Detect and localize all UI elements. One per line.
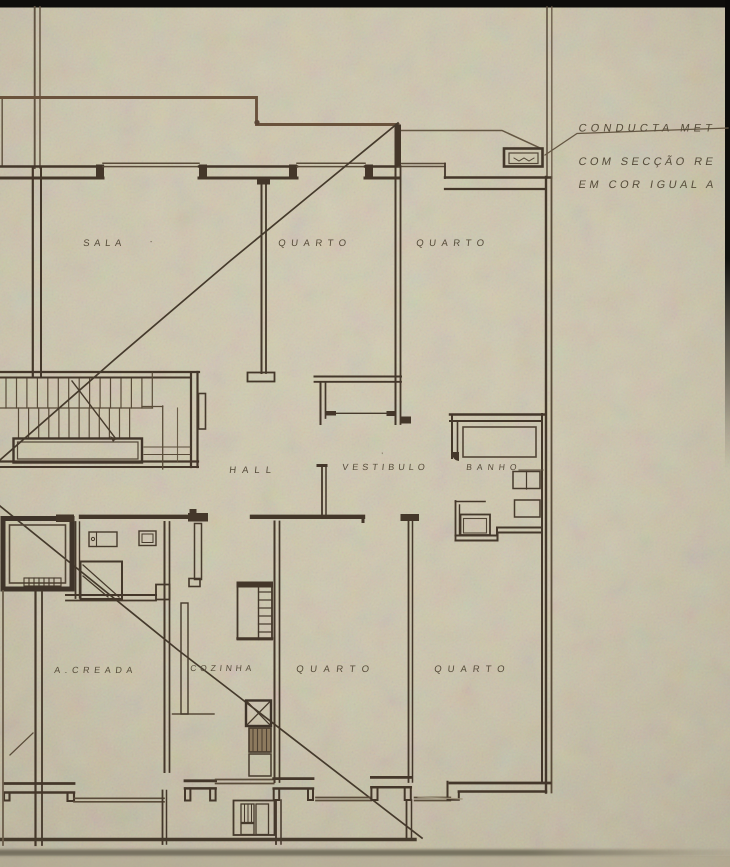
svg-text:SALA: SALA (83, 238, 127, 249)
svg-text:BANHO: BANHO (466, 462, 522, 472)
svg-text:CONDUCTA MET: CONDUCTA MET (577, 123, 717, 135)
svg-text:QUARTO: QUARTO (278, 238, 352, 249)
svg-text:COZINHA: COZINHA (190, 663, 256, 673)
svg-text:QUARTO: QUARTO (296, 664, 376, 675)
svg-text:': ' (382, 453, 388, 460)
svg-text:-: - (150, 239, 157, 246)
svg-text:QUARTO: QUARTO (416, 238, 490, 249)
svg-text:QUARTO: QUARTO (434, 664, 511, 675)
svg-text:HALL: HALL (229, 465, 278, 476)
svg-text:A.CREADA: A.CREADA (54, 665, 138, 675)
svg-text:COM SECÇÃO RE: COM SECÇÃO RE (577, 155, 717, 168)
svg-text:EM COR IGUAL A: EM COR IGUAL A (577, 179, 717, 191)
svg-text:VESTIBULO: VESTIBULO (342, 462, 430, 472)
